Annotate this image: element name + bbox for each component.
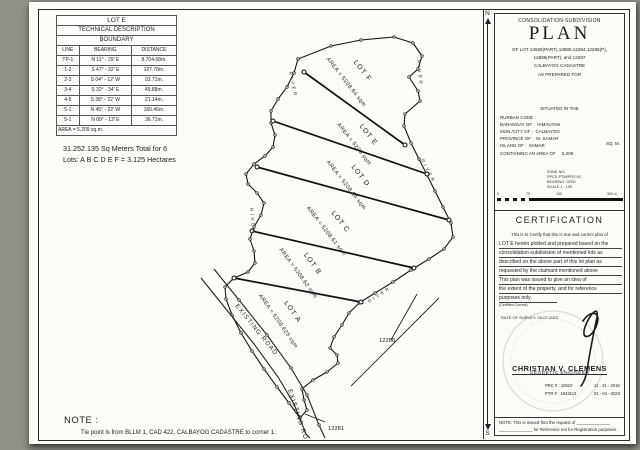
island-row: ISLAND OF : SAMAR xyxy=(500,143,545,148)
prepared-for-line: AS PREPARED FOR xyxy=(495,72,624,77)
scale-tick-75: 75 xyxy=(526,192,530,196)
lot-d-label: LOT D xyxy=(350,164,371,188)
division-line-b-a xyxy=(234,278,361,302)
river-label: RIVER xyxy=(420,158,437,184)
south-label: S xyxy=(483,430,492,437)
scale-tick-150: 150 xyxy=(556,192,562,196)
adjacent-lot-12281: 12281 xyxy=(328,426,344,432)
situated-in-line: SITUATED IN THE xyxy=(495,106,624,111)
graphic-scale-bar: 0 75 150 300 m. xyxy=(497,192,623,202)
lot-c-label: LOT C xyxy=(330,210,351,234)
barangay-row: BARANGAY OF : HIMAUTAN xyxy=(500,122,560,127)
division-line-e-d xyxy=(273,121,427,174)
adjacent-lot-12288: 12288 xyxy=(379,338,395,344)
lot-a-label: LOT A xyxy=(282,300,302,324)
province-value: W. SAMAR xyxy=(536,136,559,141)
certification-line: LOT E herein plotted and prepared based … xyxy=(499,240,622,249)
scale-tick-300: 300 m. xyxy=(607,192,618,196)
ptr-number: PTR # : 1943113 xyxy=(545,391,576,396)
zone-info: ZONE NO: PPCS-PTM/PRS 92 BEARING: GRID S… xyxy=(547,170,581,190)
meridian-line xyxy=(487,23,488,427)
paper-sheet: LOT E TECHNICAL DESCRIPTION BOUNDARY LIN… xyxy=(29,2,636,444)
municipality-label: MUN./CITY OF : xyxy=(500,129,533,134)
road-edge-2 xyxy=(201,278,310,438)
road-edge-1 xyxy=(214,269,325,438)
municipality-row: MUN./CITY OF : CALBAYOG xyxy=(500,129,560,134)
footer-note-line1: NOTE: This is issued thru the request of… xyxy=(499,420,610,425)
river-label: RIVER xyxy=(367,285,392,304)
municipality-value: CALBAYOG xyxy=(535,129,559,134)
scale-bar-striped-segment xyxy=(497,198,529,201)
certification-line: This plan was issued to give an idea of xyxy=(499,276,622,285)
certification-line: consolidation-subdivision of mentioned l… xyxy=(499,249,622,258)
containing-area-value: 5,209 xyxy=(562,151,573,156)
sqm-unit-label: SQ. M. xyxy=(606,141,620,146)
ptr-date: 01 - 04 - 2023 xyxy=(594,391,620,396)
footer-divider xyxy=(495,417,624,418)
of-lot-line2: 12886(PART), and 12287 xyxy=(495,55,624,60)
zone-scale: SCALE 1 : 100 xyxy=(547,185,581,190)
division-line-f-e xyxy=(304,72,405,145)
north-south-arrow: N S xyxy=(483,10,492,439)
tie-point-note: Tie point is from BLLM 1, CAD 422, CALBA… xyxy=(81,430,276,436)
certification-line: the extent of the property, and for refe… xyxy=(499,285,622,294)
barangay-value: HIMAUTAN xyxy=(537,122,560,127)
north-label: N xyxy=(483,10,492,17)
lot-f-label: LOT F xyxy=(352,59,373,83)
section-divider xyxy=(495,210,624,211)
certification-line: requested by the claimant mentioned abov… xyxy=(499,267,622,276)
scale-tick-0: 0 xyxy=(497,192,499,196)
plan-title: PLAN xyxy=(495,23,624,45)
lot-c-area: AREA = 5208.61 sqm xyxy=(305,206,347,258)
cadastre-line: CALBAYOG CADASTRE xyxy=(495,63,624,68)
certification-body: LOT E herein plotted and prepared based … xyxy=(499,240,622,307)
province-row: PROVINCE OF : W. SAMAR xyxy=(500,136,559,141)
certification-line: described on the above part of this lot … xyxy=(499,258,622,267)
title-block: CONSOLIDATION-SUBDIVISION PLAN OF LOT 13… xyxy=(492,10,631,439)
containing-area-row: CONTAINING AN AREA OF 5,209 xyxy=(500,151,573,156)
map-panel: LOT E TECHNICAL DESCRIPTION BOUNDARY LIN… xyxy=(39,10,484,439)
engineer-title: GEODETIC ENGINEER xyxy=(495,371,624,376)
title-block-box: CONSOLIDATION-SUBDIVISION PLAN OF LOT 13… xyxy=(494,13,625,436)
river-label: RIVER xyxy=(249,208,256,235)
prc-number: PRC # : 10510 xyxy=(545,383,572,388)
scale-bar-segment xyxy=(529,198,623,201)
scanned-survey-plan: { "colors":{"ink":"#1f1f1f","paper":"#fb… xyxy=(0,0,640,450)
lot-d-area: AREA = 5208.64 sqm xyxy=(325,160,367,212)
map-note-label: NOTE : xyxy=(64,415,99,426)
lot-b-area: AREA = 5208.62 sqm xyxy=(278,247,319,300)
of-lot-line1: OF LOT 13686(PART),13885,12284,12285(P), xyxy=(495,47,624,52)
plan-border-frame: LOT E TECHNICAL DESCRIPTION BOUNDARY LIN… xyxy=(38,9,630,441)
river-label: RIVER xyxy=(288,71,298,98)
island-value: SAMAR xyxy=(529,143,545,148)
certification-title: CERTIFICATION xyxy=(495,215,624,225)
lot-e-label: LOT E xyxy=(358,123,379,147)
province-label: PROVINCE OF : xyxy=(500,136,534,141)
certification-intro: This is to Certify that this is true and… xyxy=(495,232,624,237)
parcel-boundary xyxy=(225,37,453,418)
river-label: RIVER xyxy=(416,60,424,87)
rurban-code-label: RURBAN CODE : xyxy=(500,115,536,120)
parcel-drawing: LOT F AREA = 5208.64 sqm LOT E AREA = 52… xyxy=(39,10,483,439)
containing-area-label: CONTAINING AN AREA OF xyxy=(500,151,556,156)
island-label: ISLAND OF : xyxy=(500,143,526,148)
footer-note-line2: ______________ for Reference not for Reg… xyxy=(499,427,617,432)
lot-b-label: LOT B xyxy=(302,252,322,276)
existing-road-label: EXISTING ROAD xyxy=(286,388,312,439)
barangay-label: BARANGAY OF : xyxy=(500,122,535,127)
prc-date: 11 - 21 - 2018 xyxy=(594,383,620,388)
